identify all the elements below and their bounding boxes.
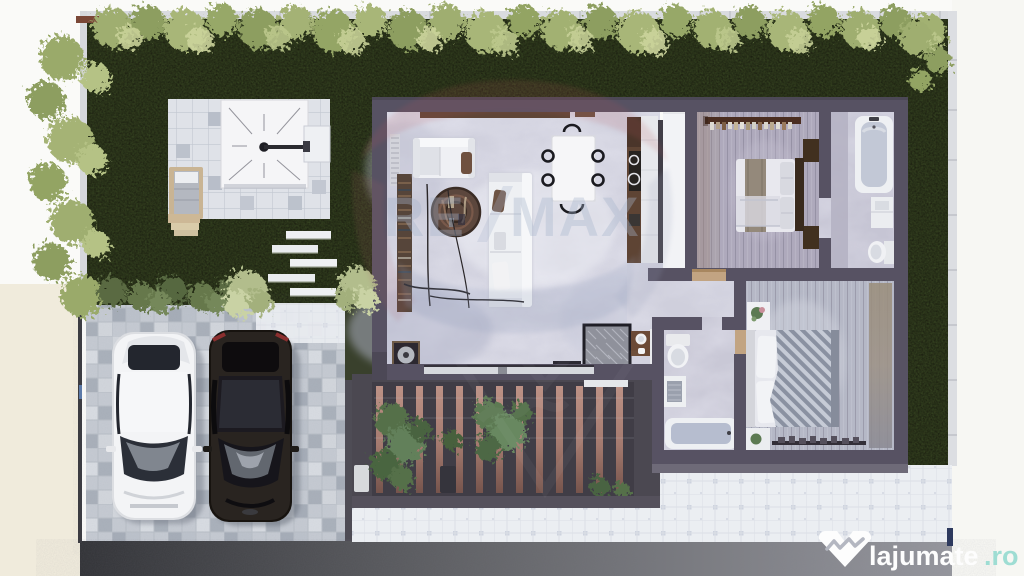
- svg-text:MAX: MAX: [510, 185, 640, 248]
- svg-text:.ro: .ro: [984, 541, 1019, 571]
- svg-text:lajumate: lajumate: [869, 541, 979, 571]
- svg-text:RE: RE: [384, 185, 466, 248]
